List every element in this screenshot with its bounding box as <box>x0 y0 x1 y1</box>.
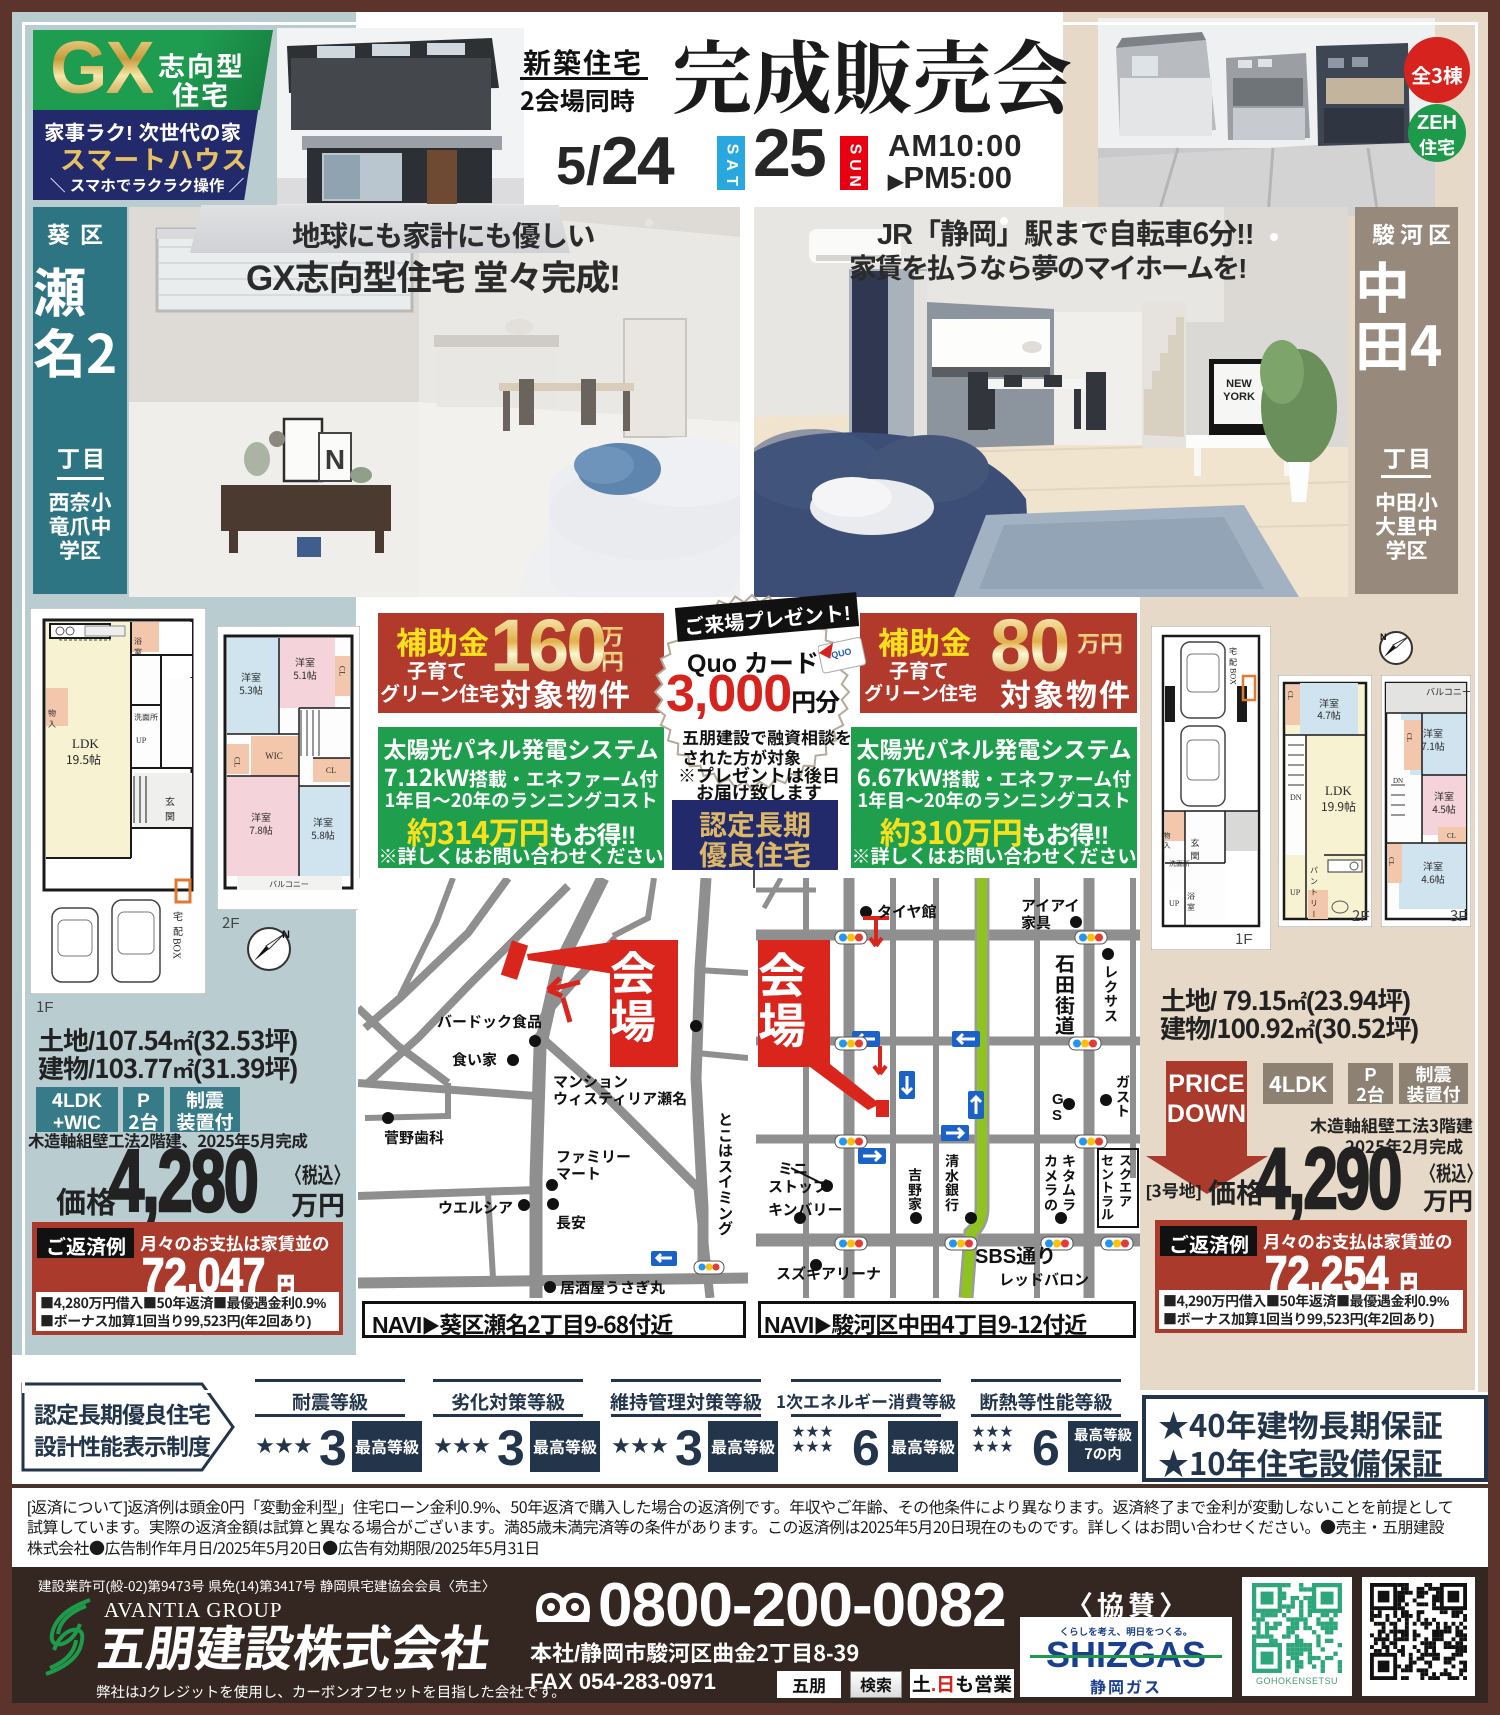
svg-text:4.7帖: 4.7帖 <box>1317 707 1341 722</box>
svg-text:DN: DN <box>1290 792 1302 803</box>
svg-text:バルコニー: バルコニー <box>1426 685 1471 698</box>
svg-text:CL: CL <box>1404 733 1414 742</box>
svg-text:LDK: LDK <box>72 733 99 752</box>
svg-text:N: N <box>1380 632 1387 642</box>
svg-text:N: N <box>325 444 345 475</box>
svg-text:玄関: 玄関 <box>1189 836 1202 862</box>
svg-text:バルコニー: バルコニー <box>269 879 309 890</box>
svg-text:CL: CL <box>1285 691 1295 700</box>
svg-text:CL: CL <box>326 765 336 776</box>
svg-text:7.1帖: 7.1帖 <box>1421 738 1445 753</box>
svg-text:UP: UP <box>1290 887 1301 898</box>
svg-text:パントリー: パントリー <box>1309 865 1320 920</box>
svg-text:19.5帖: 19.5帖 <box>66 751 101 768</box>
svg-text:物入: 物入 <box>1162 831 1172 851</box>
svg-text:7.8帖: 7.8帖 <box>249 822 273 837</box>
svg-text:玄関: 玄関 <box>163 793 178 823</box>
svg-text:UP: UP <box>136 735 147 746</box>
svg-text:LDK: LDK <box>1325 780 1352 799</box>
svg-text:5.1帖: 5.1帖 <box>293 667 317 682</box>
svg-text:4.5帖: 4.5帖 <box>1432 801 1456 816</box>
svg-text:CL: CL <box>232 757 243 767</box>
svg-text:5.8帖: 5.8帖 <box>311 827 335 842</box>
svg-text:CL: CL <box>1447 831 1456 841</box>
svg-text:5.3帖: 5.3帖 <box>239 682 263 697</box>
svg-text:WIC: WIC <box>265 749 283 762</box>
svg-text:YORK: YORK <box>1223 391 1255 403</box>
svg-text:宅配BOX: 宅配BOX <box>1228 646 1239 685</box>
svg-text:宅配BOX: 宅配BOX <box>171 908 186 960</box>
svg-text:洗面所: 洗面所 <box>134 712 158 723</box>
svg-text:浴室: 浴室 <box>133 636 144 658</box>
svg-text:洗面所: 洗面所 <box>1169 859 1190 869</box>
svg-text:N: N <box>282 929 290 941</box>
svg-text:4.6帖: 4.6帖 <box>1421 871 1445 886</box>
svg-text:CL: CL <box>337 666 348 676</box>
svg-text:NEW: NEW <box>1226 378 1252 390</box>
svg-text:物入: 物入 <box>47 708 58 730</box>
svg-text:UP: UP <box>1169 898 1180 909</box>
svg-text:浴室: 浴室 <box>1186 891 1197 913</box>
svg-text:19.9帖: 19.9帖 <box>1321 798 1356 815</box>
svg-text:CL: CL <box>1386 857 1396 866</box>
svg-text:DN: DN <box>1393 776 1403 786</box>
